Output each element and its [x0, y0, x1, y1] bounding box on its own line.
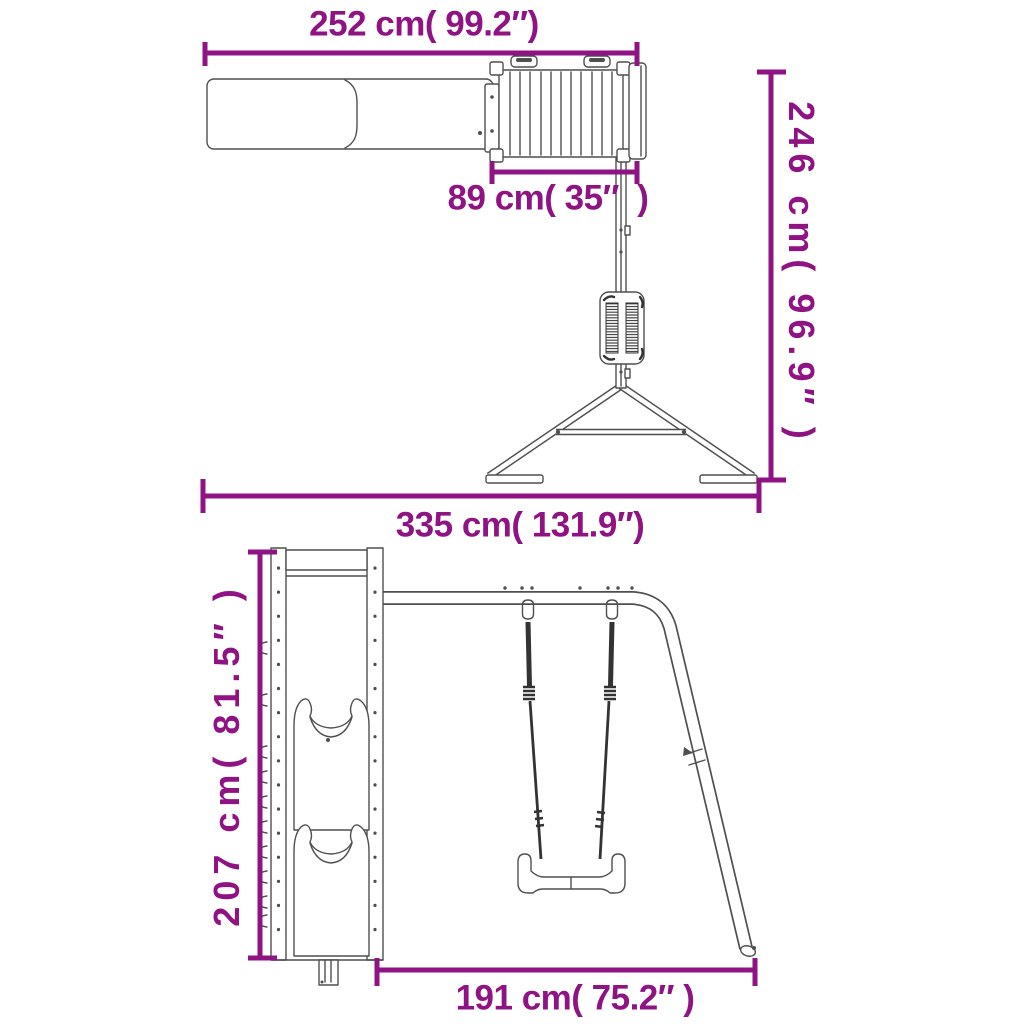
- diagram-canvas: 252 cm( 99.2″) 89 cm( 35″ ) 246 cm( 96.9…: [0, 0, 1024, 1024]
- dimension-label-overall-span: 335 cm( 131.9″): [396, 508, 645, 543]
- right-foot: [700, 475, 757, 483]
- platform-top-view: [485, 56, 646, 162]
- dimension-label-top-span: 252 cm( 99.2″): [309, 7, 539, 42]
- left-foot: [486, 475, 543, 483]
- dimension-label-tower-height: 207 cm( 81.5″ ): [209, 583, 245, 926]
- swing-side-view: [518, 600, 625, 893]
- dimension-label-swing-depth: 191 cm( 75.2″ ): [456, 981, 695, 1016]
- top-view-drawing: [207, 56, 757, 483]
- tower-side-view: [259, 548, 383, 985]
- dimension-label-platform-width: 89 cm( 35″ ): [448, 181, 649, 216]
- swing-beam-side-view: [383, 586, 757, 958]
- side-view-drawing: [259, 548, 757, 985]
- slide-top-view: [207, 79, 493, 149]
- swing-seat-top-view: [600, 292, 644, 364]
- dimension-line-252cm: [205, 42, 637, 66]
- dimension-label-frame-reach: 246 cm( 96.9″ ): [783, 101, 819, 444]
